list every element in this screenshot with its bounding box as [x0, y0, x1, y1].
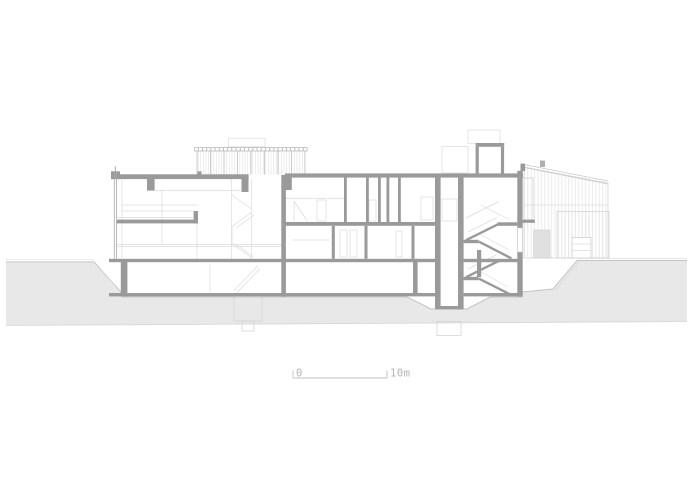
scale-label-zero: 0 — [296, 368, 303, 380]
clerestory-glazing — [196, 151, 307, 175]
left-basement-wall — [121, 262, 128, 297]
earth-ground — [6, 258, 687, 325]
building-cut-structure — [109, 143, 535, 309]
stair-landing-upper — [498, 222, 518, 226]
section-drawing: 0 10m — [0, 0, 700, 495]
scale-label-ten-meters: 10m — [390, 368, 410, 380]
mezzanine-slab — [117, 220, 198, 224]
basement-slab — [109, 293, 435, 296]
roof-downstand-a — [147, 179, 155, 191]
right-window-sill — [521, 220, 535, 223]
ground-slab — [109, 259, 435, 262]
background-buildings — [524, 161, 609, 259]
left-parapet — [111, 171, 120, 179]
stair-spine-wall — [477, 250, 481, 277]
central-wall — [281, 175, 286, 297]
right-roof-edge-beam — [285, 178, 292, 191]
stair-bulkhead-roof — [476, 143, 505, 147]
elevator-shaft-wall-right — [458, 174, 464, 306]
background-annex-window — [572, 238, 591, 259]
basement-wall — [413, 262, 418, 294]
background-retaining-block — [534, 230, 551, 258]
roof-downstand-b — [242, 179, 249, 192]
scale-bar: 0 10m — [293, 368, 410, 380]
background-roof-cap — [540, 161, 545, 168]
elevator-pit-slab — [435, 306, 464, 309]
upper-floor-slab — [285, 222, 435, 226]
mezzanine-upstand — [194, 211, 198, 223]
elevator-shaft-wall-left — [435, 174, 441, 306]
left-glass-facade — [114, 166, 116, 259]
right-parapet-cap — [521, 164, 526, 171]
left-roof-slab — [111, 174, 249, 179]
section-drawing-sheet: 0 10m — [0, 0, 700, 495]
right-roof-slab — [285, 173, 523, 177]
roof-glazing — [195, 148, 308, 175]
roof-pergola — [195, 148, 308, 151]
